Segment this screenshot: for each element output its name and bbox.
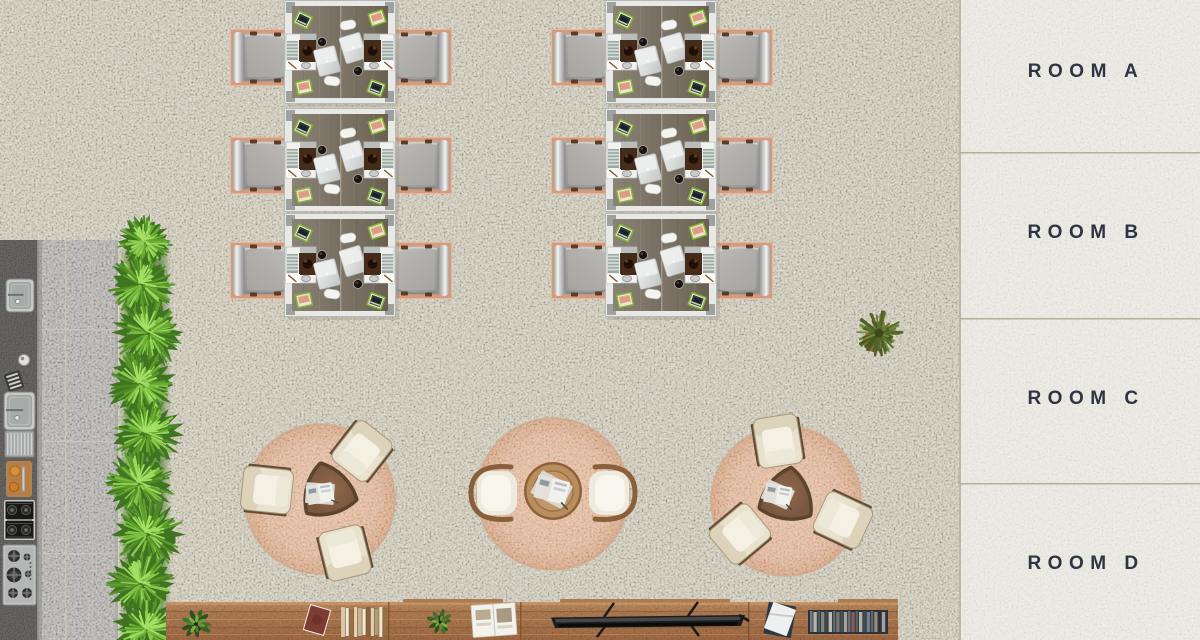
svg-text:ROOM A: ROOM A: [1028, 61, 1144, 82]
svg-text:ROOM D: ROOM D: [1027, 553, 1144, 574]
svg-text:ROOM C: ROOM C: [1027, 388, 1144, 409]
svg-text:ROOM B: ROOM B: [1027, 222, 1144, 243]
